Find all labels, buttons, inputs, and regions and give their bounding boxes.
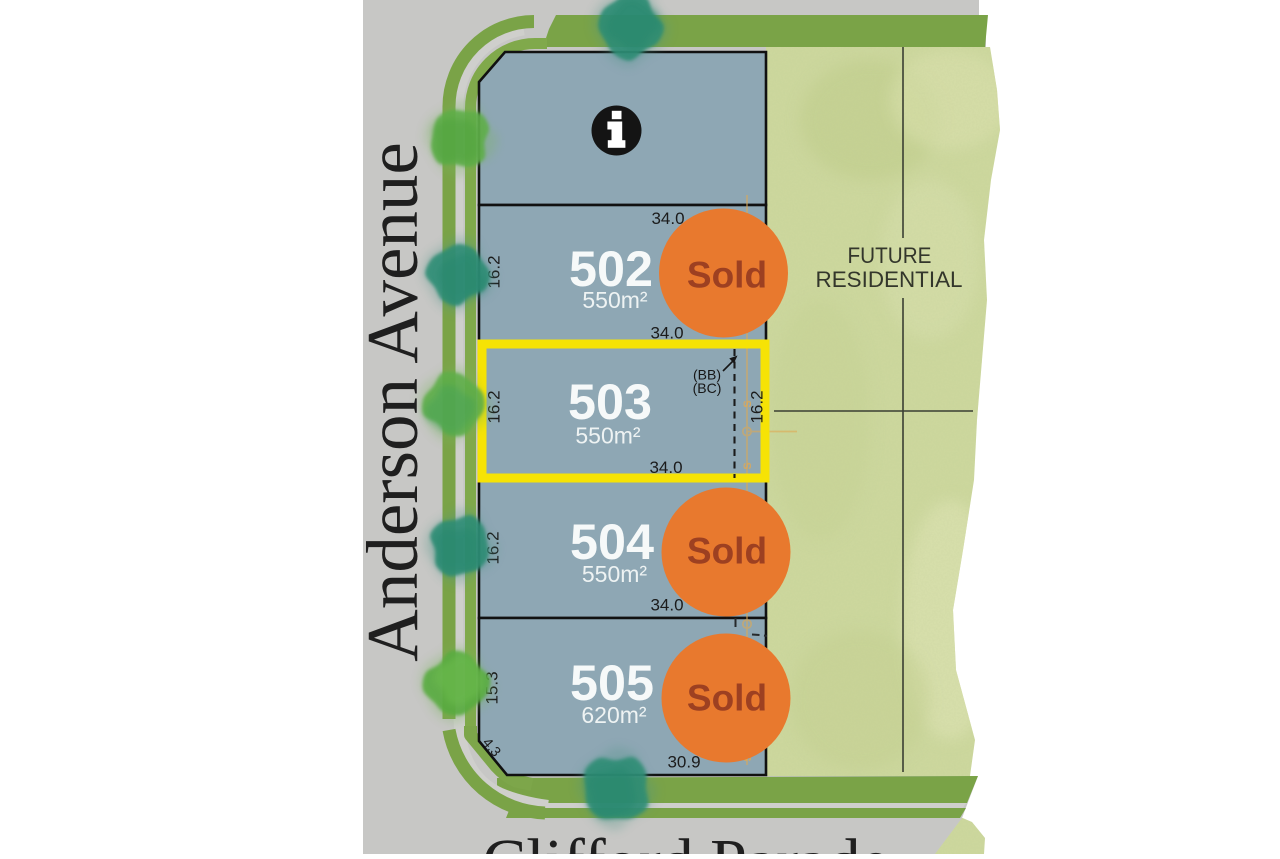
svg-text:620m²: 620m² [581,702,647,728]
svg-text:34.0: 34.0 [651,209,684,228]
svg-text:34.0: 34.0 [649,458,682,477]
svg-text:FUTURE: FUTURE [848,243,932,268]
svg-text:30.9: 30.9 [667,753,700,772]
svg-text:Clifford Parade: Clifford Parade [482,826,890,854]
svg-text:34.0: 34.0 [650,324,683,343]
svg-text:Sold: Sold [687,678,767,719]
svg-text:(BC): (BC) [693,380,722,396]
svg-text:16.2: 16.2 [748,390,767,423]
svg-text:550m²: 550m² [582,287,648,313]
svg-text:Anderson Avenue: Anderson Avenue [352,142,433,662]
svg-text:34.0: 34.0 [650,596,683,615]
svg-text:S: S [742,462,754,469]
svg-text:550m²: 550m² [575,423,641,449]
svg-text:RESIDENTIAL: RESIDENTIAL [816,267,963,292]
svg-text:Sold: Sold [687,531,767,572]
svg-text:550m²: 550m² [582,561,648,587]
svg-text:Sold: Sold [687,255,767,296]
